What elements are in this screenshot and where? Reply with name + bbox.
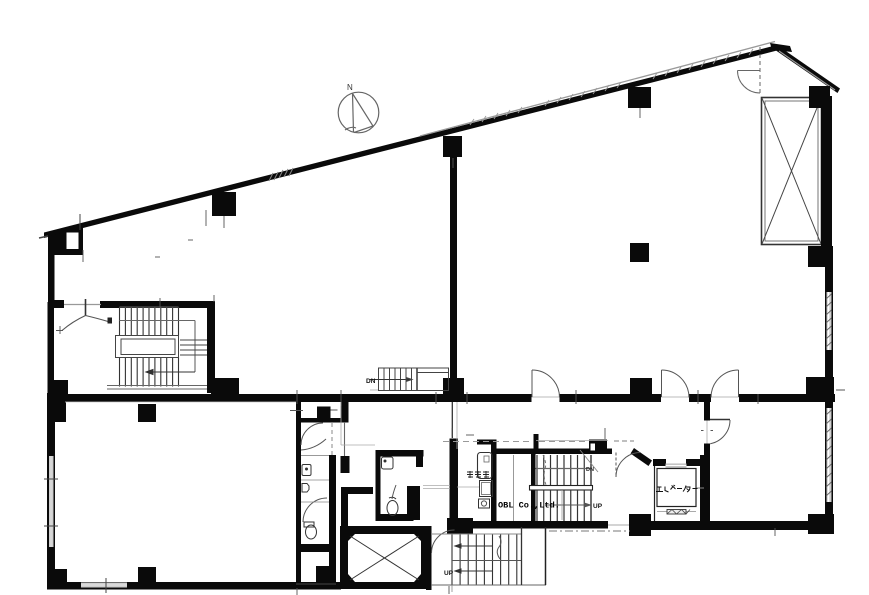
svg-text:OBL Co.,Ltd.: OBL Co.,Ltd. xyxy=(498,501,560,511)
svg-text:DN: DN xyxy=(366,378,376,385)
svg-text:N: N xyxy=(347,83,353,92)
svg-text:UP: UP xyxy=(593,503,603,510)
svg-text:UP: UP xyxy=(444,570,454,577)
svg-text:DN: DN xyxy=(586,467,594,473)
